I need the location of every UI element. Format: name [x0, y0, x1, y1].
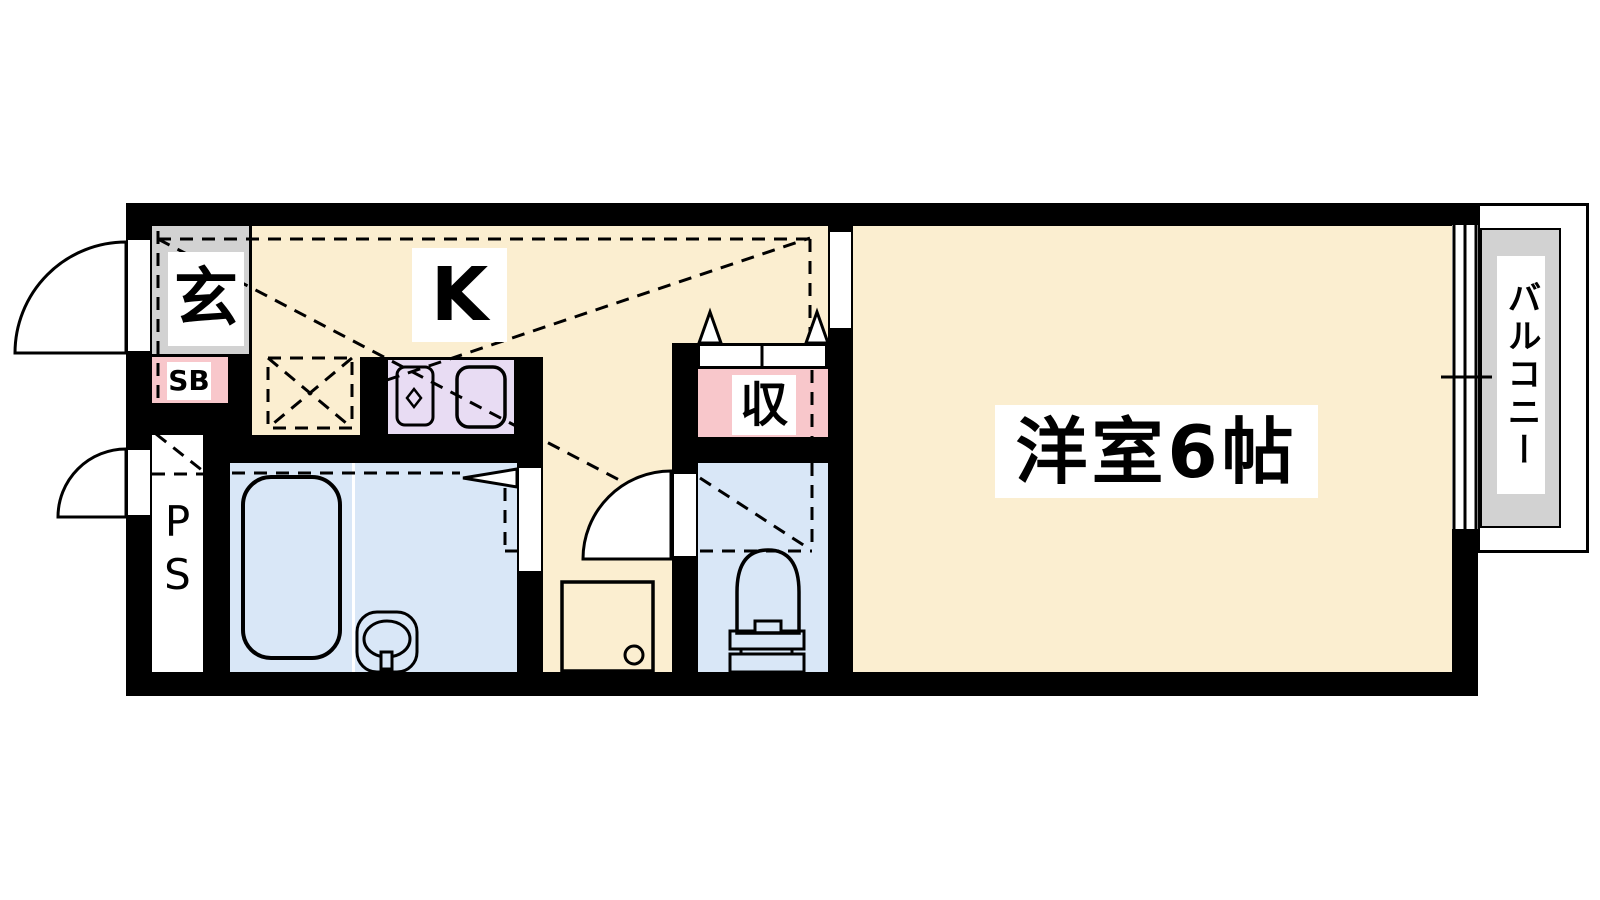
- bedroom-door-opening: [828, 230, 853, 330]
- closet-label: 収: [732, 375, 796, 435]
- closet-folding-door: [697, 343, 828, 369]
- genkan-label: 玄: [168, 252, 244, 346]
- washroom-door-opening: [517, 466, 543, 573]
- hallway-floor: [543, 463, 672, 672]
- balcony-label: バルコニー: [1497, 256, 1545, 494]
- wall-ps-bath: [203, 432, 230, 672]
- wall-closet-bottom: [672, 437, 828, 463]
- entrance-door-swing: [15, 242, 126, 353]
- toilet-door-opening: [672, 472, 698, 558]
- pipe-space-label: PS: [156, 496, 198, 604]
- ps-door-swing: [58, 449, 126, 517]
- kitchen-label: K: [412, 248, 507, 342]
- wall-top: [126, 203, 1478, 226]
- ps-door-opening: [126, 448, 152, 517]
- wall-kitchen-bath: [203, 435, 543, 463]
- toilet-floor: [698, 463, 828, 672]
- floor-plan: 玄 SB K 収 洋室6帖 バルコニー PS: [0, 0, 1600, 900]
- wall-sb-bottom: [152, 403, 252, 435]
- bath-floor: [230, 463, 352, 672]
- sliding-window: [1452, 225, 1478, 529]
- shoe-box-label: SB: [167, 362, 211, 400]
- wall-counter-left: [360, 357, 385, 437]
- entrance-door-opening: [126, 238, 152, 353]
- wall-bottom: [126, 672, 1478, 696]
- wall-right-lower: [1452, 529, 1478, 696]
- kitchen-counter: [385, 357, 517, 437]
- western-room-label: 洋室6帖: [995, 405, 1318, 498]
- washroom-floor: [355, 463, 517, 672]
